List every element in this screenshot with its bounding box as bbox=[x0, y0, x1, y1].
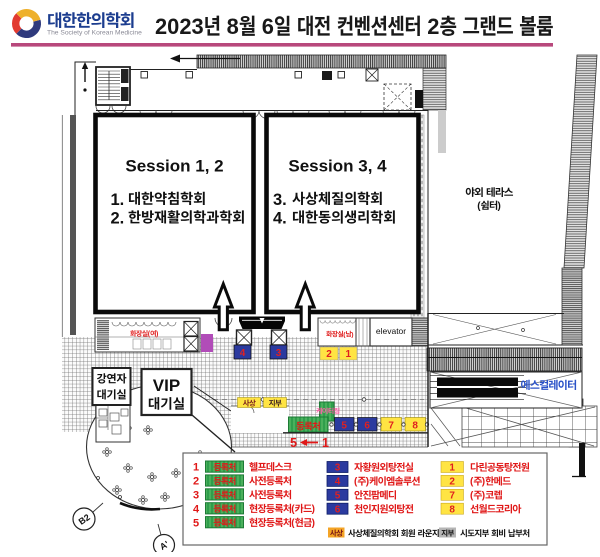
svg-text:5: 5 bbox=[290, 436, 297, 450]
svg-text:elevator: elevator bbox=[376, 326, 406, 336]
svg-text:): ) bbox=[482, 491, 485, 502]
svg-text:4: 4 bbox=[335, 477, 341, 488]
svg-text:8: 8 bbox=[449, 504, 455, 515]
svg-text:Session 1, 2: Session 1, 2 bbox=[125, 157, 223, 176]
svg-text:1: 1 bbox=[322, 436, 329, 450]
svg-text:2.: 2. bbox=[111, 209, 125, 227]
svg-text:2023: 2023 bbox=[155, 14, 204, 39]
svg-text:): ) bbox=[351, 332, 353, 339]
svg-text:6: 6 bbox=[262, 14, 274, 39]
svg-text:1: 1 bbox=[346, 349, 352, 360]
svg-text:3: 3 bbox=[193, 490, 199, 502]
svg-text:1.: 1. bbox=[111, 191, 125, 209]
svg-text:): ) bbox=[366, 477, 369, 488]
svg-text:6: 6 bbox=[335, 504, 341, 515]
svg-text:3: 3 bbox=[276, 348, 282, 359]
svg-text:5: 5 bbox=[335, 491, 341, 502]
svg-text:): ) bbox=[482, 477, 485, 488]
svg-text:): ) bbox=[156, 331, 158, 338]
svg-text:8: 8 bbox=[227, 14, 239, 39]
svg-text:2: 2 bbox=[449, 477, 455, 488]
svg-text:5: 5 bbox=[193, 517, 199, 529]
svg-text:): ) bbox=[312, 518, 315, 529]
svg-text:5: 5 bbox=[341, 421, 347, 432]
svg-text:2: 2 bbox=[193, 476, 199, 488]
svg-text:3.: 3. bbox=[273, 191, 287, 209]
svg-text:7: 7 bbox=[388, 421, 394, 432]
svg-text:VIP: VIP bbox=[153, 376, 180, 395]
svg-text:2: 2 bbox=[427, 14, 439, 39]
svg-text:8: 8 bbox=[412, 421, 418, 432]
svg-text:Session 3, 4: Session 3, 4 bbox=[288, 157, 387, 176]
svg-text:4: 4 bbox=[193, 503, 200, 515]
svg-text:4: 4 bbox=[240, 348, 246, 359]
svg-text:): ) bbox=[498, 201, 501, 212]
svg-text:3: 3 bbox=[335, 463, 341, 474]
svg-text:2: 2 bbox=[326, 349, 332, 360]
svg-text:1: 1 bbox=[449, 463, 455, 474]
svg-text:The Society of Korean Medicine: The Society of Korean Medicine bbox=[47, 30, 142, 37]
svg-text:7: 7 bbox=[449, 491, 455, 502]
svg-text:6: 6 bbox=[364, 421, 370, 432]
svg-text:): ) bbox=[312, 504, 315, 515]
svg-text:1: 1 bbox=[193, 462, 199, 474]
svg-text:4.: 4. bbox=[273, 209, 287, 227]
